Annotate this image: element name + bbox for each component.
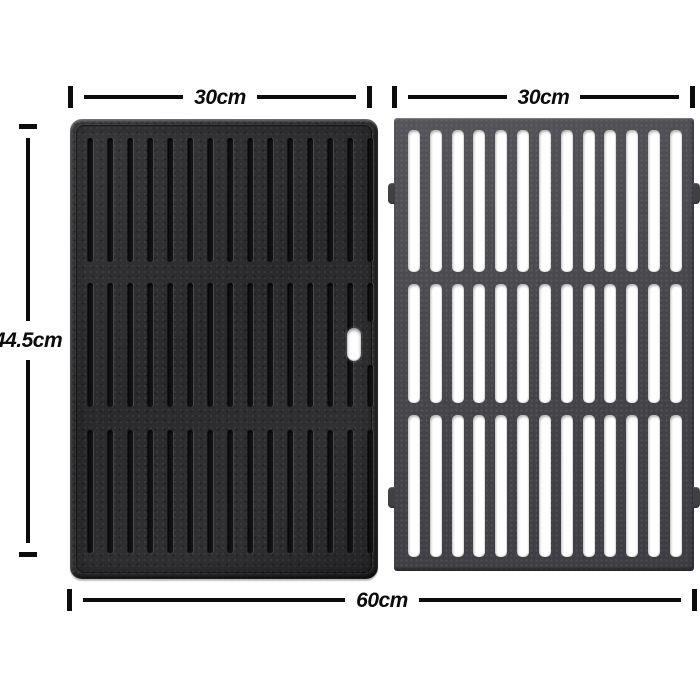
griddle-split-groove — [368, 283, 373, 407]
grate-slot — [495, 415, 507, 557]
griddle-groove-band — [88, 430, 373, 553]
grate-slot — [408, 130, 420, 272]
griddle-groove — [248, 138, 253, 262]
dimension-line — [257, 95, 356, 99]
grate-slot — [561, 284, 573, 403]
griddle-groove — [168, 283, 173, 407]
grate-slot — [626, 415, 638, 557]
dimension-label-plate-height: 44.5cm — [0, 330, 62, 351]
griddle-groove — [108, 283, 113, 407]
grate-slot — [648, 415, 660, 557]
griddle-groove — [88, 430, 93, 553]
grate-slot — [539, 130, 551, 272]
griddle-groove — [268, 138, 273, 262]
dimension-line — [84, 95, 183, 99]
griddle-groove — [368, 365, 373, 407]
dimension-line — [83, 598, 345, 602]
griddle-groove — [288, 283, 293, 407]
grate-slot-row — [408, 130, 682, 272]
dimension-right-plate-width: 30cm — [392, 86, 695, 108]
grate-slot — [670, 284, 682, 403]
grate-slot — [626, 130, 638, 272]
griddle-groove — [128, 138, 133, 262]
dimension-label-left-plate-width: 30cm — [194, 87, 246, 108]
griddle-groove — [188, 283, 193, 407]
grate-slot — [473, 415, 485, 557]
griddle-groove — [368, 430, 373, 553]
dimension-end-tick — [67, 589, 72, 611]
grate-slot — [648, 130, 660, 272]
grate-slot — [452, 284, 464, 403]
grate-slot — [452, 130, 464, 272]
grate-slot — [517, 130, 529, 272]
grate-mounting-tab — [388, 183, 395, 204]
grate-slot — [670, 415, 682, 557]
dimension-end-tick — [692, 589, 697, 611]
griddle-groove — [208, 430, 213, 553]
grate-mounting-tab — [693, 183, 700, 204]
griddle-groove — [128, 430, 133, 553]
dimension-line — [408, 95, 507, 99]
griddle-groove — [208, 138, 213, 262]
griddle-groove — [368, 283, 373, 322]
dimension-end-tick — [367, 86, 372, 108]
grill-grate — [394, 118, 694, 571]
griddle-groove — [188, 138, 193, 262]
griddle-groove — [168, 138, 173, 262]
griddle-groove — [308, 138, 313, 262]
grate-slot-row — [408, 415, 682, 557]
dimension-label-total-width: 60cm — [356, 590, 408, 611]
griddle-groove — [148, 283, 153, 407]
product-dimension-image: 30cm 30cm 44.5cm 60cm — [0, 0, 700, 700]
griddle-plate — [70, 119, 378, 579]
griddle-groove — [368, 138, 373, 262]
griddle-groove — [228, 283, 233, 407]
grate-slot — [430, 284, 442, 403]
griddle-groove-band — [88, 283, 373, 407]
grate-slot — [408, 284, 420, 403]
dimension-line — [419, 598, 681, 602]
grate-slot — [604, 130, 616, 272]
griddle-groove — [208, 283, 213, 407]
dimension-end-tick — [690, 86, 695, 108]
grate-slot — [583, 415, 595, 557]
dimension-end-tick — [68, 86, 73, 108]
griddle-groove — [248, 430, 253, 553]
griddle-groove — [108, 138, 113, 262]
griddle-groove-band — [88, 138, 373, 262]
grate-slot — [473, 130, 485, 272]
griddle-groove — [268, 430, 273, 553]
dimension-line — [26, 138, 30, 321]
grate-slot — [648, 284, 660, 403]
grate-slot — [670, 130, 682, 272]
grate-slot — [517, 415, 529, 557]
grate-slot — [539, 415, 551, 557]
grate-slot — [452, 415, 464, 557]
grate-slot — [561, 130, 573, 272]
griddle-groove — [328, 283, 333, 407]
grate-slot — [583, 130, 595, 272]
dimension-label-right-plate-width: 30cm — [518, 87, 570, 108]
grate-slot-row — [408, 284, 682, 403]
grate-mounting-tab — [388, 487, 395, 508]
grate-slot — [604, 284, 616, 403]
grate-mounting-tab — [693, 487, 700, 508]
grate-slot — [561, 415, 573, 557]
grate-slot — [517, 284, 529, 403]
griddle-groove — [228, 138, 233, 262]
griddle-groove — [168, 430, 173, 553]
griddle-groove — [268, 283, 273, 407]
griddle-groove — [348, 138, 353, 262]
griddle-groove — [148, 430, 153, 553]
grate-slot — [495, 130, 507, 272]
griddle-groove — [108, 430, 113, 553]
griddle-groove — [128, 283, 133, 407]
griddle-groove — [308, 283, 313, 407]
griddle-groove — [348, 430, 353, 553]
grate-slot — [539, 284, 551, 403]
grate-slot — [583, 284, 595, 403]
dimension-end-tick — [392, 86, 397, 108]
griddle-groove — [228, 430, 233, 553]
griddle-groove — [248, 283, 253, 407]
dimension-line — [26, 360, 30, 543]
griddle-handle-hole — [347, 328, 361, 361]
griddle-groove — [328, 430, 333, 553]
griddle-groove — [88, 138, 93, 262]
griddle-groove — [288, 138, 293, 262]
dimension-plate-height: 44.5cm — [0, 124, 56, 557]
griddle-groove — [188, 430, 193, 553]
griddle-groove — [88, 283, 93, 407]
dimension-left-plate-width: 30cm — [68, 86, 372, 108]
grate-slot — [473, 284, 485, 403]
dimension-total-width: 60cm — [67, 589, 697, 611]
dimension-end-tick — [19, 552, 37, 557]
griddle-groove — [288, 430, 293, 553]
griddle-groove — [328, 138, 333, 262]
griddle-groove — [308, 430, 313, 553]
grate-slot — [495, 284, 507, 403]
grate-slot — [604, 415, 616, 557]
dimension-end-tick — [19, 124, 37, 129]
griddle-groove — [148, 138, 153, 262]
grate-slot — [626, 284, 638, 403]
grate-slot — [430, 415, 442, 557]
grate-slot — [430, 130, 442, 272]
dimension-line — [580, 95, 679, 99]
grate-slot — [408, 415, 420, 557]
